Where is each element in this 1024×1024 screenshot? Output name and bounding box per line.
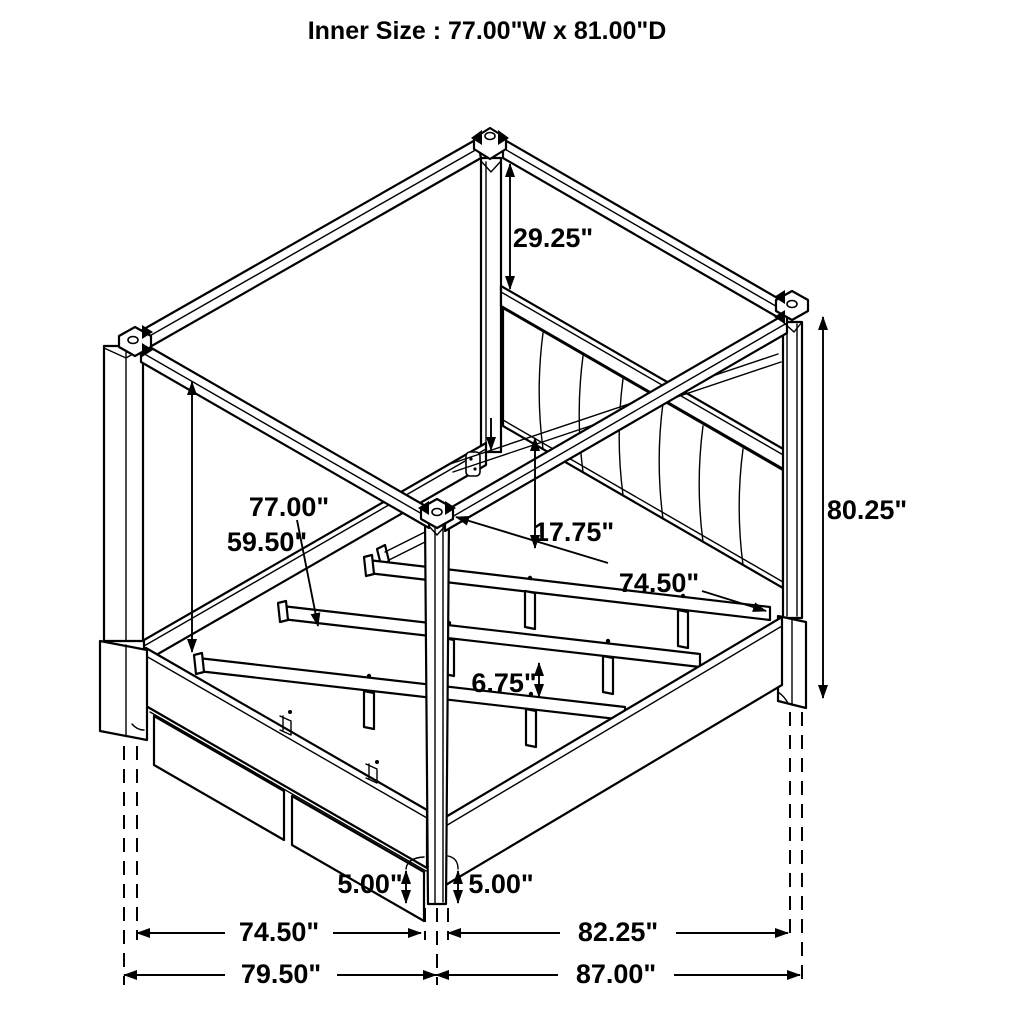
slat-leg [526,709,536,747]
dim-base-height-right: 5.00" [468,869,533,899]
dim-inner-width: 77.00" [249,492,329,522]
back-post [481,158,501,452]
dim-canopy-rail-to-base: 59.50" [227,527,307,557]
diagram-canvas: Inner Size : 77.00"W x 81.00"D 29.25" 59… [0,0,1024,1024]
dim-footprint-depth-inner: 82.25" [578,917,658,947]
front-post [425,519,449,904]
slat-leg [678,610,688,648]
canopy-frame-back [130,139,786,356]
diagram-title: Inner Size : 77.00"W x 81.00"D [308,17,667,45]
bed-drawing [100,128,808,921]
dim-rail-inner-span: 74.50" [619,568,699,598]
slat-leg [525,591,535,629]
slat-leg [364,691,374,729]
dim-canopy-to-headboard: 29.25" [513,223,593,253]
dim-footprint-width-overall: 79.50" [241,959,321,989]
dim-footprint-depth-overall: 87.00" [576,959,656,989]
slat-leg [603,656,613,694]
dim-headboard-drop: 17.75" [534,517,614,547]
dim-slat-leg-height: 6.75" [471,668,536,698]
left-post [100,346,147,740]
dim-base-height-left: 5.00" [337,869,402,899]
bed-dimension-diagram: Inner Size : 77.00"W x 81.00"D 29.25" 59… [0,0,1024,1024]
dim-overall-height: 80.25" [827,495,907,525]
dim-footprint-width-inner: 74.50" [239,917,319,947]
